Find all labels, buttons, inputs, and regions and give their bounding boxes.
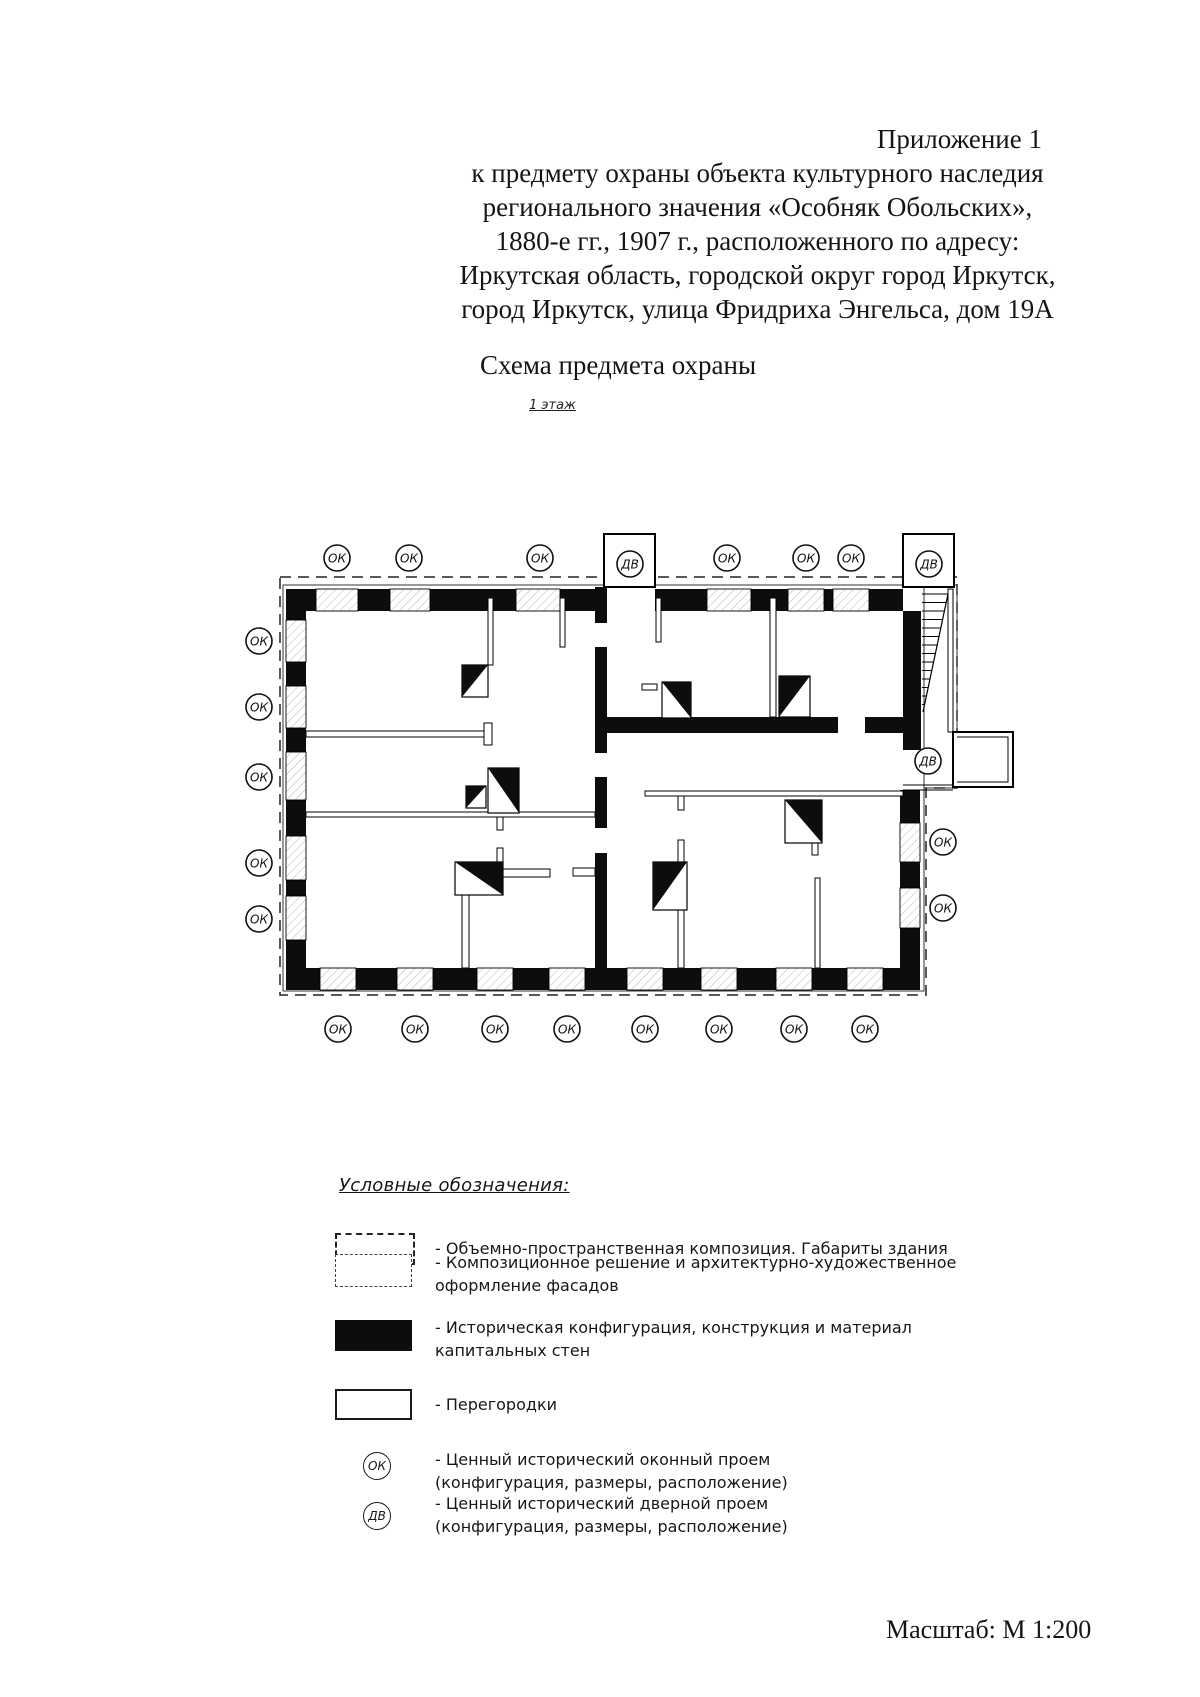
document-page: { "header": { "lines": [ "Приложение 1",… [0,0,1200,1697]
door-circle-symbol: ДВ [363,1502,391,1530]
capital-wall [869,589,903,611]
window-opening [847,968,883,990]
window-opening [286,686,306,728]
porch [953,732,1013,787]
capital-wall [286,880,306,896]
legend-item-text: капитальных стен [435,1341,590,1360]
door-marker-label: ДВ [919,558,938,572]
partition [656,598,661,642]
capital-wall-symbol [335,1320,412,1351]
partition [462,895,469,968]
window-opening [788,589,824,611]
capital-wall [865,717,903,733]
capital-wall [607,717,838,733]
window-marker-label: ОК [250,857,268,871]
capital-wall [900,862,920,888]
window-opening [701,968,737,990]
window-opening [390,589,430,611]
window-marker-label: ОК [486,1023,504,1037]
door-marker-label: ДВ [368,1505,386,1528]
partition [560,598,565,647]
partition [488,598,493,665]
window-marker-label: ОК [710,1023,728,1037]
window-opening [549,968,585,990]
window-marker-label: ОК [856,1023,874,1037]
window-marker-label: ОК [250,913,268,927]
window-opening [286,620,306,662]
window-opening [776,968,812,990]
partition [645,791,903,796]
capital-wall [286,800,306,836]
capital-wall [663,968,701,990]
window-opening [627,968,663,990]
partition [678,910,684,968]
partition [306,731,484,737]
window-marker-label: ОК [406,1023,424,1037]
scale-note: Масштаб: М 1:200 [886,1615,1091,1645]
capital-wall [286,589,306,620]
partition [815,878,820,968]
legend-item-text: оформление фасадов [435,1276,619,1295]
legend-item-text: (конфигурация, размеры, расположение) [435,1473,788,1492]
legend-item-text: - Перегородки [435,1395,557,1414]
window-marker-label: ОК [636,1023,654,1037]
window-marker-label: ОК [250,771,268,785]
partition [497,848,503,862]
window-opening [900,888,920,928]
capital-wall [595,647,607,753]
window-marker-label: ОК [558,1023,576,1037]
window-marker-label: ОК [250,701,268,715]
window-opening [286,836,306,880]
window-opening [900,823,920,862]
partition [678,796,684,810]
capital-wall [286,728,306,752]
partition [573,868,595,876]
capital-wall [737,968,776,990]
partition [484,723,492,745]
window-marker-label: ОК [531,552,549,566]
window-marker-label: ОК [400,552,418,566]
facade-rect-symbol [335,1254,412,1287]
legend-item-text: - Ценный исторический дверной проем [435,1494,768,1513]
window-opening [286,752,306,800]
window-opening [516,589,560,611]
partition-symbol [335,1389,412,1420]
window-opening [286,896,306,940]
window-opening [397,968,433,990]
capital-wall [430,589,516,611]
floor-plan: ОКОКОКДВОКОКОКДВОКОКОКОКОКДВОКОКОКОКОКОК… [0,0,1200,1697]
legend-item-text: - Композиционное решение и архитектурно-… [435,1253,956,1272]
capital-wall [812,968,847,990]
capital-wall [655,589,707,611]
capital-wall [358,589,390,611]
partition [812,843,818,855]
capital-wall [903,611,921,750]
partition [642,684,657,690]
capital-wall [585,968,627,990]
partition [306,812,595,817]
partition [678,840,684,862]
window-marker-label: ОК [934,902,952,916]
window-marker-label: ОК [328,552,346,566]
window-marker-label: ОК [368,1455,386,1478]
partition [497,817,503,830]
legend-item-text: (конфигурация, размеры, расположение) [435,1517,788,1536]
capital-wall [824,589,833,611]
annex-right-wall [948,589,953,732]
window-opening [320,968,356,990]
capital-wall [900,928,920,990]
building-envelope-dashed [280,577,957,995]
window-opening [316,589,358,611]
capital-wall [595,587,607,623]
window-marker-label: ОК [934,836,952,850]
window-marker-label: ОК [797,552,815,566]
window-marker-label: ОК [842,552,860,566]
window-marker-label: ОК [785,1023,803,1037]
window-opening [707,589,751,611]
legend-item-text: - Историческая конфигурация, конструкция… [435,1318,912,1337]
legend-title: Условные обозначения: [339,1175,570,1196]
legend-item-text: - Ценный исторический оконный проем [435,1450,770,1469]
capital-wall [356,968,397,990]
window-opening [833,589,869,611]
capital-wall [433,968,477,990]
window-opening [477,968,513,990]
capital-wall [595,777,607,828]
window-marker-label: ОК [718,552,736,566]
capital-wall [595,853,607,968]
window-circle-symbol: ОК [363,1452,391,1480]
window-marker-label: ОК [250,635,268,649]
partition [503,869,550,877]
capital-wall [513,968,549,990]
window-marker-label: ОК [329,1023,347,1037]
capital-wall [286,662,306,686]
door-marker-label: ДВ [620,558,639,572]
door-marker-label: ДВ [918,755,937,769]
partition [770,598,776,717]
capital-wall [286,968,320,990]
